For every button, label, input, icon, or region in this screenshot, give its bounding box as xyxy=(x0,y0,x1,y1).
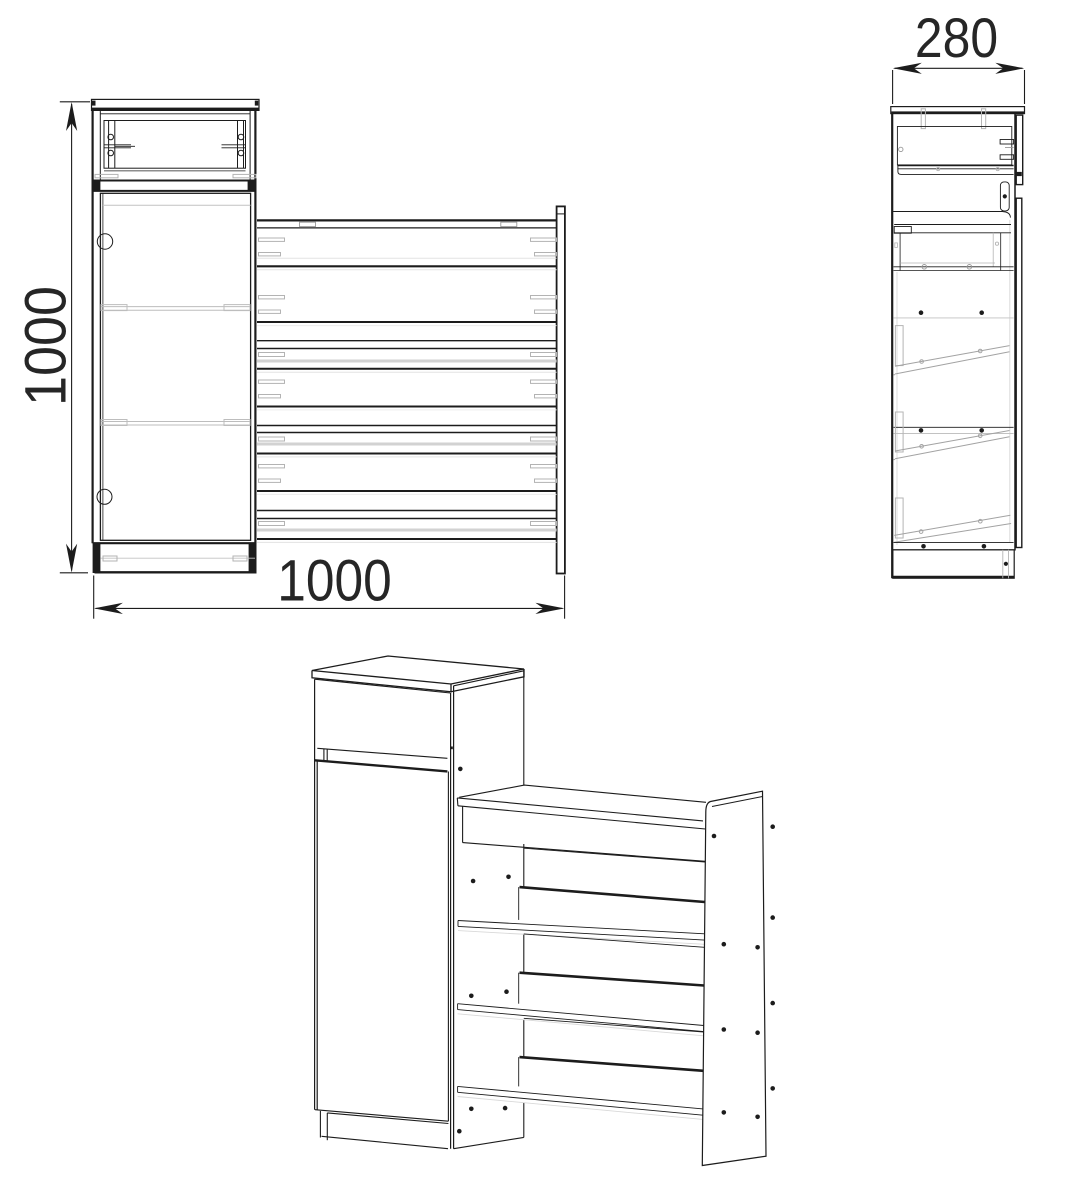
svg-text:280: 280 xyxy=(915,8,998,70)
svg-text:1000: 1000 xyxy=(13,286,78,406)
svg-text:1000: 1000 xyxy=(277,548,392,614)
